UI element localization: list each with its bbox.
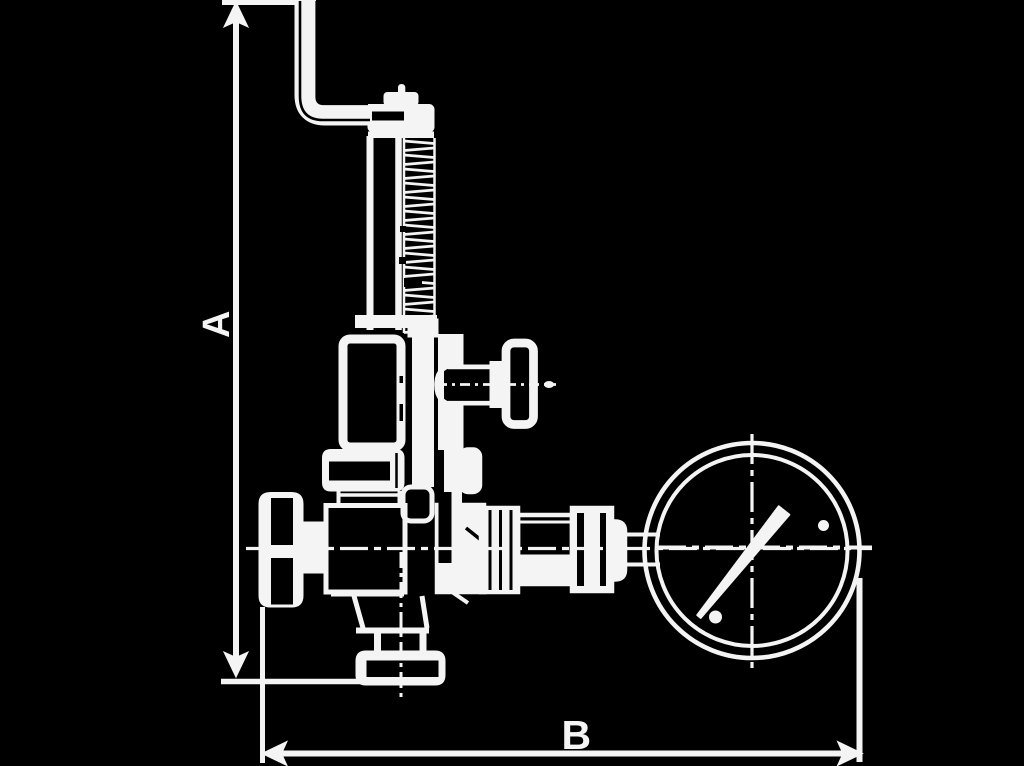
svg-text:B: B — [562, 712, 592, 758]
svg-text:A: A — [196, 311, 238, 338]
